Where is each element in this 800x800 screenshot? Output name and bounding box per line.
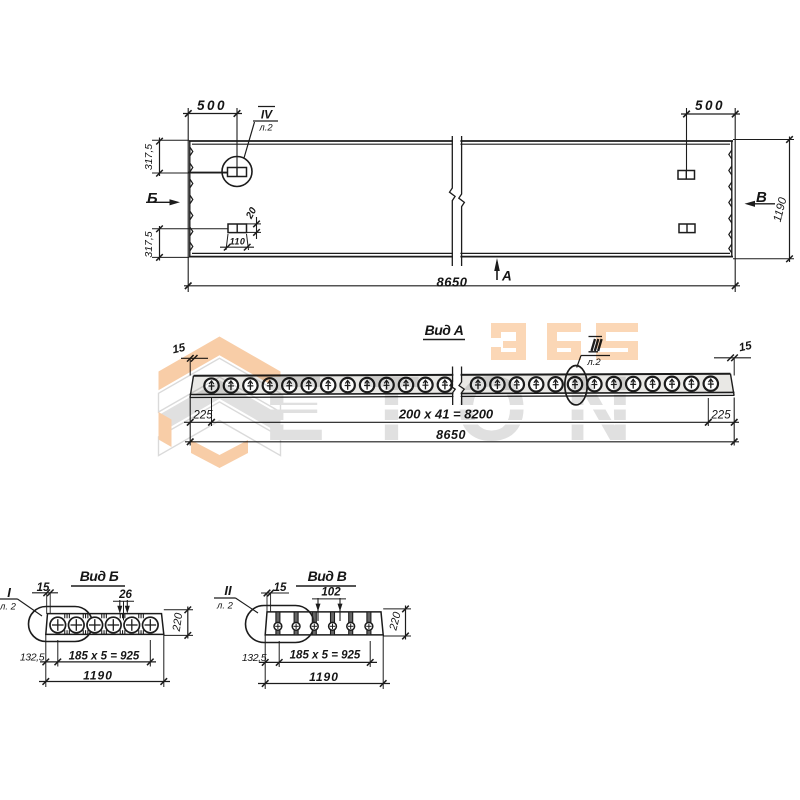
svg-text:317,5: 317,5: [143, 231, 155, 257]
svg-text:Вид Б: Вид Б: [80, 568, 119, 584]
svg-text:1190: 1190: [309, 670, 339, 684]
svg-text:20: 20: [244, 205, 260, 221]
svg-text:15: 15: [171, 342, 187, 357]
svg-text:A: A: [501, 269, 512, 284]
svg-text:IV: IV: [261, 108, 273, 122]
svg-text:185 x 5 = 925: 185 x 5 = 925: [69, 651, 140, 663]
svg-text:500: 500: [197, 98, 227, 113]
svg-text:110: 110: [230, 237, 246, 247]
svg-text:102: 102: [321, 587, 341, 599]
svg-text:л.2: л.2: [258, 123, 273, 134]
svg-text:II: II: [224, 583, 232, 598]
svg-text:л. 2: л. 2: [216, 601, 234, 612]
svg-text:185 x 5 = 925: 185 x 5 = 925: [290, 650, 361, 662]
svg-text:ETON: ETON: [264, 358, 670, 460]
svg-text:220: 220: [171, 611, 186, 633]
svg-text:500: 500: [695, 98, 725, 113]
svg-text:220: 220: [387, 610, 404, 633]
svg-text:1190: 1190: [772, 196, 790, 223]
svg-text:I: I: [7, 585, 11, 600]
svg-text:225: 225: [710, 410, 731, 422]
svg-text:26: 26: [118, 589, 132, 601]
svg-text:132,5: 132,5: [20, 652, 45, 664]
svg-text:15: 15: [738, 340, 754, 355]
svg-text:Вид В: Вид В: [308, 568, 347, 584]
svg-text:132,5: 132,5: [242, 652, 267, 664]
svg-text:15: 15: [274, 582, 287, 594]
svg-text:1190: 1190: [83, 669, 113, 683]
svg-text:Б: Б: [147, 190, 158, 207]
svg-text:317,5: 317,5: [143, 144, 155, 170]
svg-text:л. 2: л. 2: [0, 602, 17, 613]
svg-text:8650: 8650: [437, 275, 468, 290]
svg-text:Вид А: Вид А: [425, 322, 464, 338]
